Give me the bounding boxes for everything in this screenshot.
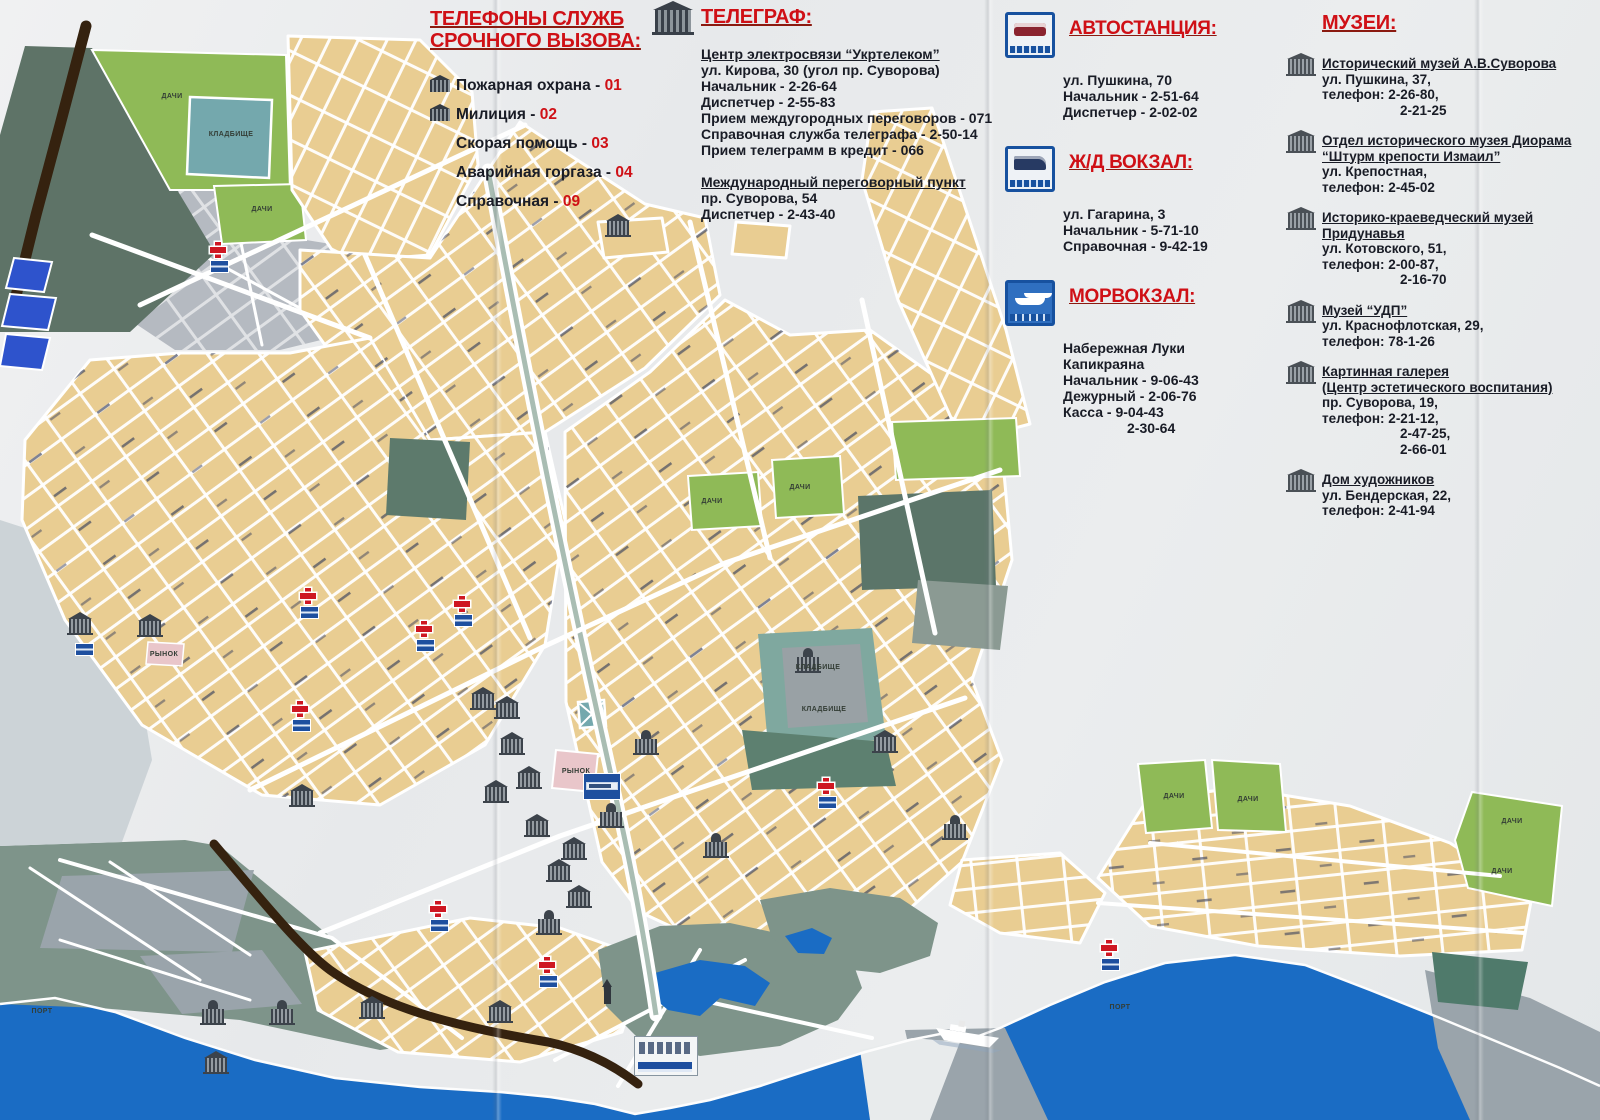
emergency-item: Справочная 09: [430, 193, 680, 211]
text-line: Справочная - 9-42-19: [1063, 238, 1265, 254]
museum-building-icon: [1288, 306, 1314, 321]
text-line: пр. Суворова, 54: [701, 190, 995, 206]
text-line: Справочная служба телеграфа - 2-50-14: [701, 126, 995, 142]
museum-name: Картинная галерея: [1322, 364, 1552, 380]
panel-title: МОРВОКЗАЛ:: [1069, 286, 1195, 307]
museum-name: “Штурм крепости Измаил”: [1322, 149, 1571, 165]
emergency-item: Милиция 02: [430, 106, 680, 124]
service-number: 03: [591, 135, 608, 153]
text-line: Прием междугородных переговоров - 071: [701, 110, 995, 126]
museum-item: Отдел исторического музея Диорама “Штурм…: [1288, 133, 1588, 195]
text-line: телефон: 2-41-94: [1322, 503, 1451, 519]
museums-panel: МУЗЕИ: Исторический музей А.В.Суворова у…: [1288, 12, 1588, 534]
text-line: ул. Бендерская, 22,: [1322, 488, 1451, 504]
service-label: Пожарная охрана: [456, 77, 605, 95]
museum-building-icon: [1288, 213, 1314, 228]
text-line: Диспетчер - 2-55-83: [701, 94, 995, 110]
org-heading: Международный переговорный пункт: [701, 174, 995, 190]
text-line: ул. Краснофлотская, 29,: [1322, 318, 1483, 334]
service-number: 01: [605, 77, 622, 95]
panel-title: ТЕЛЕФОНЫ СЛУЖБ: [430, 8, 680, 30]
text-line: ул. Крепостная,: [1322, 164, 1571, 180]
museum-building-icon: [1288, 367, 1314, 382]
emergency-item: Аварийная горгаза 04: [430, 164, 680, 182]
museum-name: Исторический музей А.В.Суворова: [1322, 56, 1556, 72]
service-number: 04: [615, 164, 632, 182]
sea-terminal-block: МОРВОКЗАЛ: Набережная Луки Капикраяна На…: [1005, 280, 1265, 436]
museum-name: Дом художников: [1322, 472, 1451, 488]
text-line: Прием телеграмм в кредит - 066: [701, 142, 995, 158]
text-line: ул. Пушкина, 70: [1063, 72, 1265, 88]
text-line: Начальник - 5-71-10: [1063, 222, 1265, 238]
museum-building-icon: [1288, 475, 1314, 490]
museum-name: (Центр эстетического воспитания): [1322, 380, 1552, 396]
panel-title: ТЕЛЕГРАФ:: [701, 6, 812, 28]
text-line: Диспетчер - 2-43-40: [701, 206, 995, 222]
text-line: телефон: 2-26-80,: [1322, 87, 1556, 103]
stations-panel: АВТОСТАНЦИЯ: ул. Пушкина, 70 Начальник -…: [1005, 12, 1265, 462]
panel-title: МУЗЕИ:: [1322, 12, 1588, 34]
museum-item: Картинная галерея (Центр эстетического в…: [1288, 364, 1588, 457]
emergency-item: Пожарная охрана 01: [430, 77, 680, 95]
sea-terminal-icon: [1005, 280, 1055, 326]
brochure-page: ДАЧИКЛАДБИЩЕДАЧИДАЧИДАЧИКЛАДБИЩЕКЛАДБИЩЕ…: [0, 0, 1600, 1120]
text-line: телефон: 2-21-12,: [1322, 411, 1552, 427]
text-line: телефон: 2-00-87,: [1322, 257, 1533, 273]
emergency-phones-panel: ТЕЛЕФОНЫ СЛУЖБ СРОЧНОГО ВЫЗОВА: Пожарная…: [430, 8, 680, 211]
telegraph-building-icon: [655, 10, 691, 32]
text-line: Начальник - 9-06-43: [1063, 372, 1265, 388]
service-label: Аварийная горгаза: [456, 164, 615, 182]
service-label: Справочная: [456, 193, 563, 211]
telegraph-panel: ТЕЛЕГРАФ: Центр электросвязи “Укртелеком…: [655, 6, 995, 222]
text-line: Начальник - 2-26-64: [701, 78, 995, 94]
text-line: Касса - 9-04-43: [1063, 404, 1265, 420]
panel-title: АВТОСТАНЦИЯ:: [1069, 18, 1217, 39]
text-line: 2-16-70: [1322, 272, 1533, 288]
text-line: Начальник - 2-51-64: [1063, 88, 1265, 104]
museum-item: Дом художников ул. Бендерская, 22, телеф…: [1288, 472, 1588, 519]
service-number: 02: [540, 106, 557, 124]
fire-station-icon: [430, 80, 450, 92]
service-label: Скорая помощь: [456, 135, 591, 153]
museum-name: Придунавья: [1322, 226, 1533, 242]
police-station-icon: [430, 109, 450, 121]
panel-title: СРОЧНОГО ВЫЗОВА:: [430, 30, 680, 52]
museum-building-icon: [1288, 136, 1314, 151]
text-line: телефон: 78-1-26: [1322, 334, 1483, 350]
text-line: ул. Гагарина, 3: [1063, 206, 1265, 222]
text-line: 2-47-25,: [1322, 426, 1552, 442]
service-number: 09: [563, 193, 580, 211]
text-line: телефон: 2-45-02: [1322, 180, 1571, 196]
museum-name: Историко-краеведческий музей: [1322, 210, 1533, 226]
text-line: ул. Кирова, 30 (угол пр. Суворова): [701, 62, 995, 78]
museum-item: Музей “УДП” ул. Краснофлотская, 29, теле…: [1288, 303, 1588, 350]
text-line: 2-21-25: [1322, 103, 1556, 119]
railway-station-icon: [1005, 146, 1055, 192]
museum-item: Исторический музей А.В.Суворова ул. Пушк…: [1288, 56, 1588, 118]
text-line: Набережная Луки: [1063, 340, 1265, 356]
text-line: Диспетчер - 2-02-02: [1063, 104, 1265, 120]
rail-station-block: Ж/Д ВОКЗАЛ: ул. Гагарина, 3 Начальник - …: [1005, 146, 1265, 254]
panel-title: Ж/Д ВОКЗАЛ:: [1069, 152, 1193, 173]
text-line: Дежурный - 2-06-76: [1063, 388, 1265, 404]
emergency-item: Скорая помощь 03: [430, 135, 680, 153]
bus-station-block: АВТОСТАНЦИЯ: ул. Пушкина, 70 Начальник -…: [1005, 12, 1265, 120]
service-label: Милиция: [456, 106, 540, 124]
text-line: ул. Пушкина, 37,: [1322, 72, 1556, 88]
museum-building-icon: [1288, 59, 1314, 74]
text-line: 2-66-01: [1322, 442, 1552, 458]
text-line: пр. Суворова, 19,: [1322, 395, 1552, 411]
org-heading: Центр электросвязи “Укртелеком”: [701, 46, 995, 62]
museum-name: Музей “УДП”: [1322, 303, 1483, 319]
museum-name: Отдел исторического музея Диорама: [1322, 133, 1571, 149]
text-line: ул. Котовского, 51,: [1322, 241, 1533, 257]
text-line: 2-30-64: [1063, 420, 1265, 436]
bus-station-icon: [1005, 12, 1055, 58]
museum-item: Историко-краеведческий музей Придунавья …: [1288, 210, 1588, 288]
text-line: Капикраяна: [1063, 356, 1265, 372]
